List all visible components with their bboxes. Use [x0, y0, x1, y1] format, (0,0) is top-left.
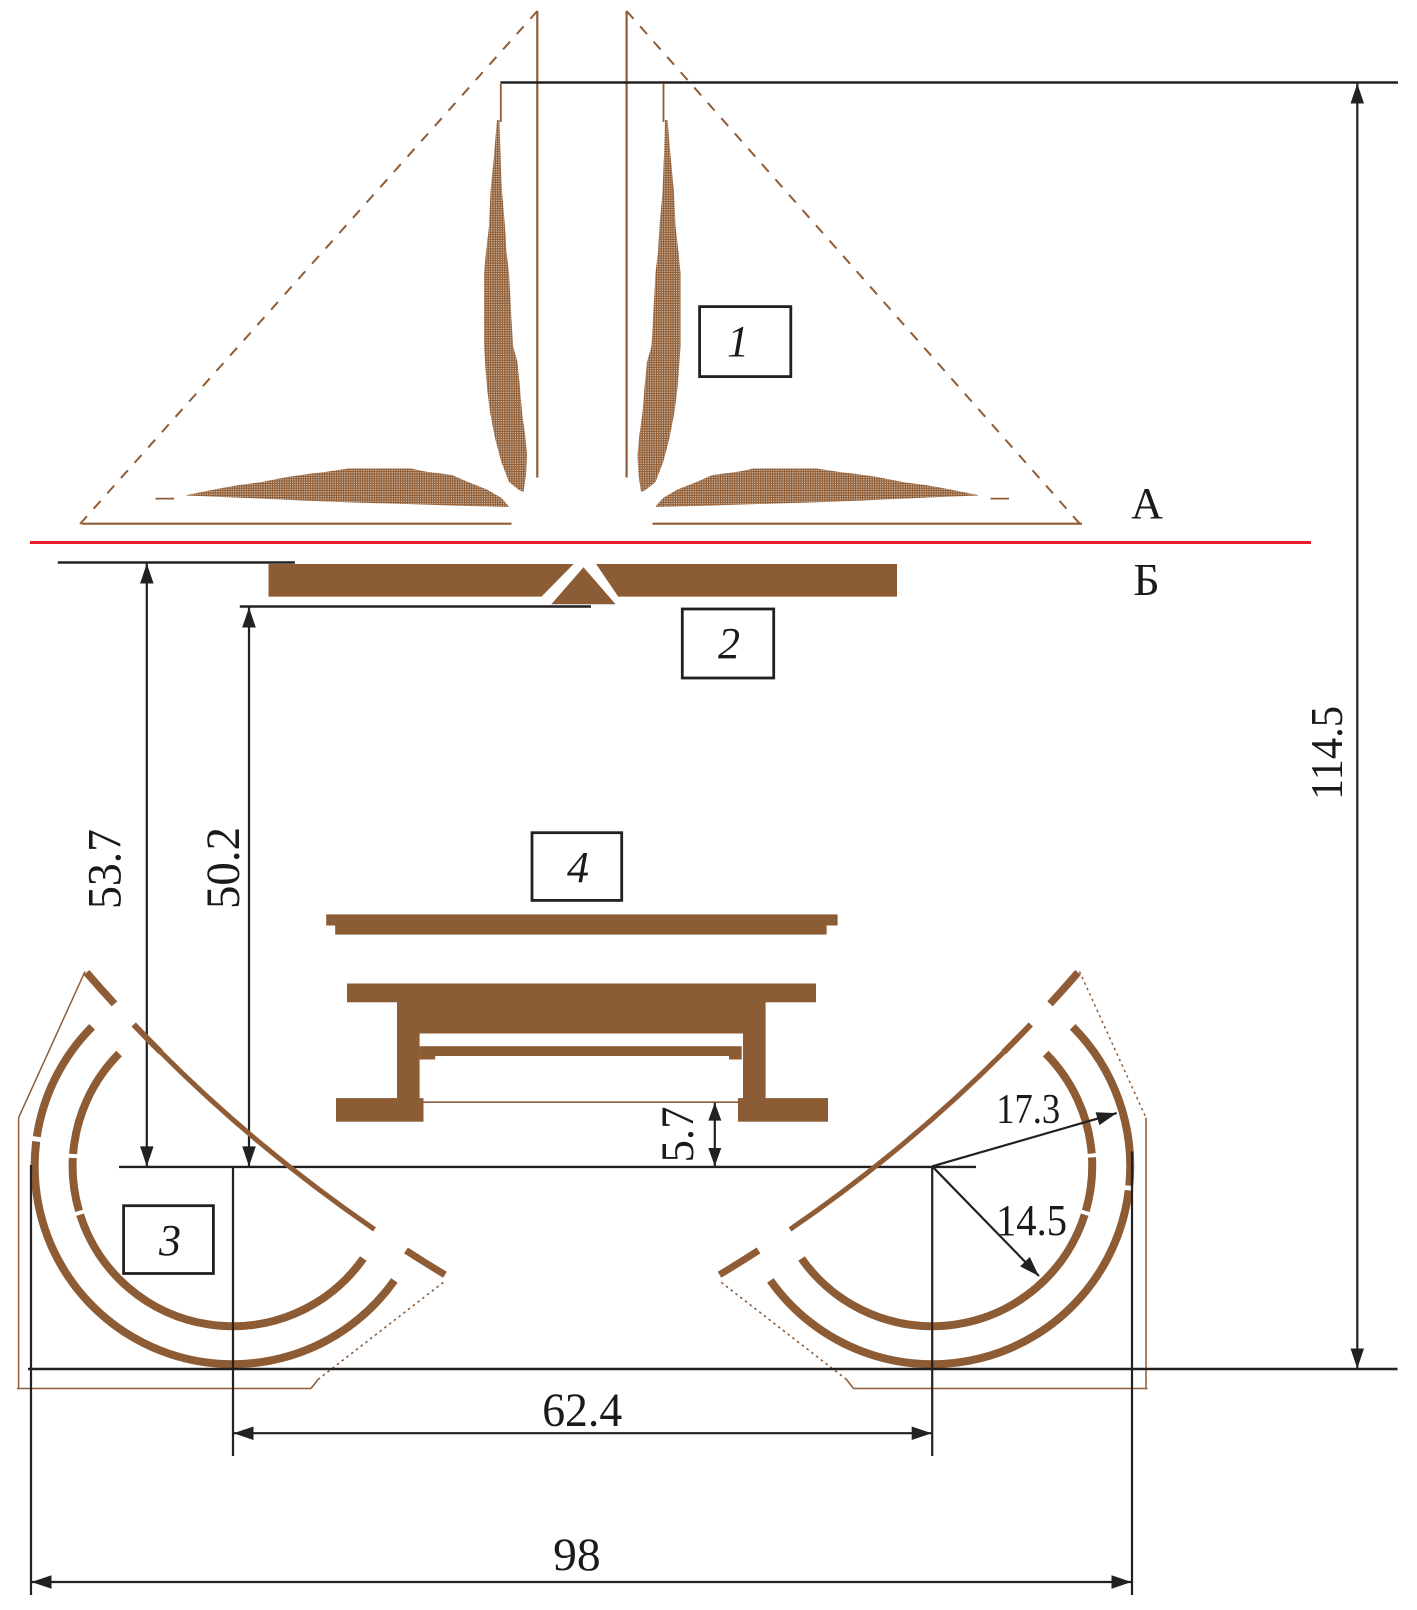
svg-text:2: 2	[718, 619, 740, 668]
svg-text:62.4: 62.4	[542, 1384, 622, 1437]
svg-text:50.2: 50.2	[197, 827, 250, 909]
svg-text:5.7: 5.7	[652, 1107, 704, 1163]
svg-text:1: 1	[727, 317, 749, 366]
svg-text:Б: Б	[1133, 554, 1159, 605]
svg-text:3: 3	[158, 1216, 181, 1265]
svg-text:98: 98	[553, 1529, 601, 1581]
svg-text:А: А	[1131, 479, 1163, 528]
svg-text:114.5: 114.5	[1302, 706, 1352, 800]
svg-text:17.3: 17.3	[996, 1087, 1060, 1133]
svg-text:53.7: 53.7	[79, 829, 132, 909]
svg-text:14.5: 14.5	[996, 1196, 1067, 1245]
svg-text:4: 4	[567, 843, 589, 892]
